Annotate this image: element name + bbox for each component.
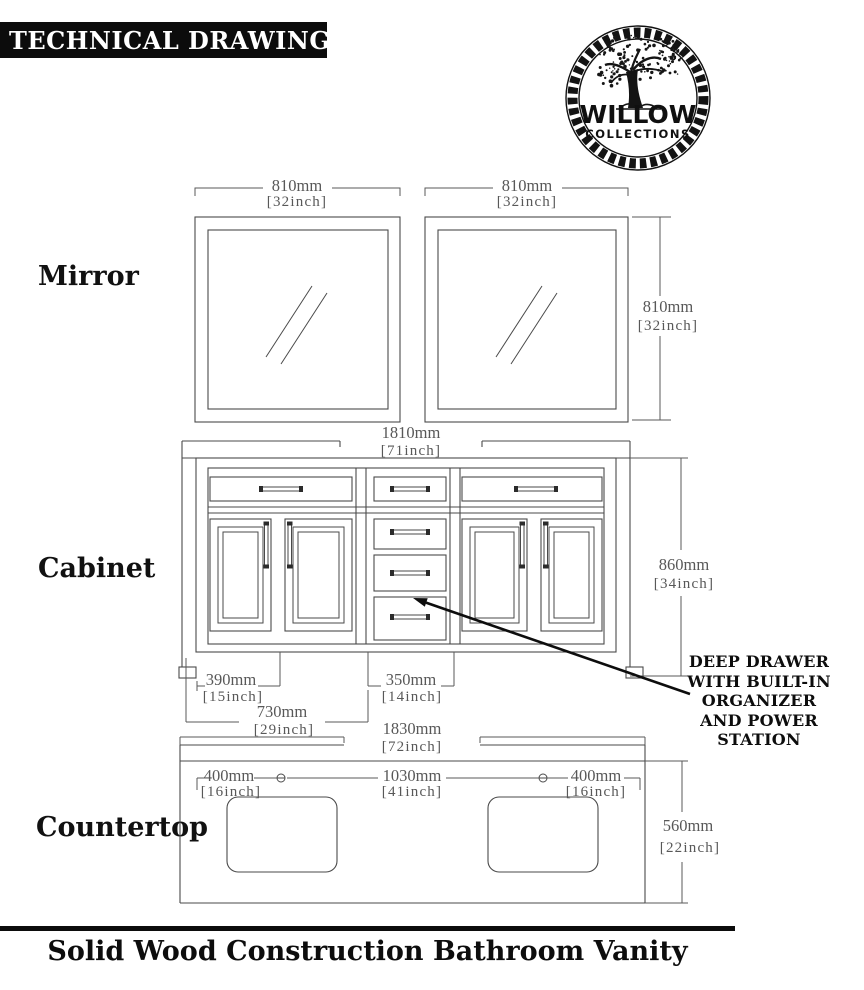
dim-text-mm: 1030mm: [383, 766, 442, 785]
sink-left: [227, 797, 337, 872]
dim-text-inch: [14inch]: [382, 689, 442, 705]
footer-divider: [0, 926, 735, 931]
dim-text-inch: [22inch]: [660, 840, 720, 856]
dim-cabinet-width: 1810mm [71inch]: [381, 423, 441, 459]
dim-cabinet-left: 390mm [15inch]: [197, 652, 280, 705]
dim-text-mm: 350mm: [386, 670, 437, 689]
glass-reflection-icon: [496, 286, 557, 364]
deep-drawer-annotation: DEEP DRAWER WITH BUILT-IN ORGANIZER AND …: [660, 652, 858, 750]
cabinet-doors-left: [210, 519, 352, 631]
dim-text-inch: [29inch]: [254, 722, 314, 738]
dim-text-inch: [16inch]: [201, 784, 261, 800]
mirror-right: [425, 217, 628, 422]
dim-text-inch: [32inch]: [267, 194, 327, 210]
annotation-line: DEEP DRAWER: [660, 652, 858, 672]
door-handle: [265, 523, 269, 566]
cabinet-drawer-top-left: [210, 477, 352, 501]
cabinet-drawer-top-right: [462, 477, 602, 501]
dim-text-mm: 1830mm: [383, 719, 442, 738]
dim-countertop-width: 1830mm [72inch]: [180, 719, 645, 755]
dim-text-mm: 400mm: [204, 766, 255, 785]
dim-countertop-center: 1030mm [41inch]: [287, 766, 539, 800]
dim-mirror-height: 810mm [32inch]: [632, 217, 698, 420]
annotation-line: WITH BUILT-IN: [660, 672, 858, 692]
annotation-line: ORGANIZER: [660, 691, 858, 711]
dim-mirror-width-left: 810mm [32inch]: [195, 176, 400, 210]
dim-text-inch: [72inch]: [382, 739, 442, 755]
door-handle: [288, 523, 292, 566]
dim-text-mm: 560mm: [663, 816, 714, 835]
sink-right: [488, 797, 598, 872]
dim-text-inch: [15inch]: [203, 689, 263, 705]
vanity-technical-drawing: 810mm [32inch] 810mm [32inch] 810mm [32i…: [0, 0, 864, 990]
dim-cabinet-middle: 350mm [14inch]: [368, 652, 454, 705]
cabinet-doors-right: [462, 519, 602, 631]
dim-text-mm: 810mm: [502, 176, 553, 195]
dim-countertop-depth: 560mm [22inch]: [645, 761, 720, 903]
dim-text-mm: 810mm: [643, 297, 694, 316]
dim-countertop-right: 400mm [16inch]: [547, 766, 640, 800]
product-title: Solid Wood Construction Bathroom Vanity: [0, 936, 735, 967]
dim-text-mm: 810mm: [272, 176, 323, 195]
dim-text-inch: [32inch]: [497, 194, 557, 210]
cabinet-foot-left: [179, 667, 196, 678]
dim-text-mm: 1810mm: [382, 423, 441, 442]
dim-text-inch: [71inch]: [381, 443, 441, 459]
technical-drawing-page: TECHNICAL DRAWING WILLOW COLLECTIONS Mir…: [0, 0, 864, 990]
dim-text-inch: [41inch]: [382, 784, 442, 800]
door-handle: [544, 523, 548, 566]
dim-text-mm: 400mm: [571, 766, 622, 785]
mirror-left: [195, 217, 400, 422]
dim-text-mm: 860mm: [659, 555, 710, 574]
dim-text-mm: 390mm: [206, 670, 257, 689]
door-handle: [521, 523, 525, 566]
dim-text-inch: [34inch]: [654, 576, 714, 592]
dim-cabinet-height: 860mm [34inch]: [630, 458, 714, 676]
annotation-arrow: [413, 598, 690, 694]
dim-countertop-left: 400mm [16inch]: [197, 766, 277, 800]
cabinet-drawer-top-middle: [374, 477, 446, 501]
glass-reflection-icon: [266, 286, 327, 364]
dim-text-inch: [32inch]: [638, 318, 698, 334]
dim-text-mm: 730mm: [257, 702, 308, 721]
annotation-line: AND POWER STATION: [660, 711, 858, 750]
dim-text-inch: [16inch]: [566, 784, 626, 800]
dim-mirror-width-right: 810mm [32inch]: [425, 176, 628, 210]
cabinet-middle-drawers: [374, 519, 446, 640]
